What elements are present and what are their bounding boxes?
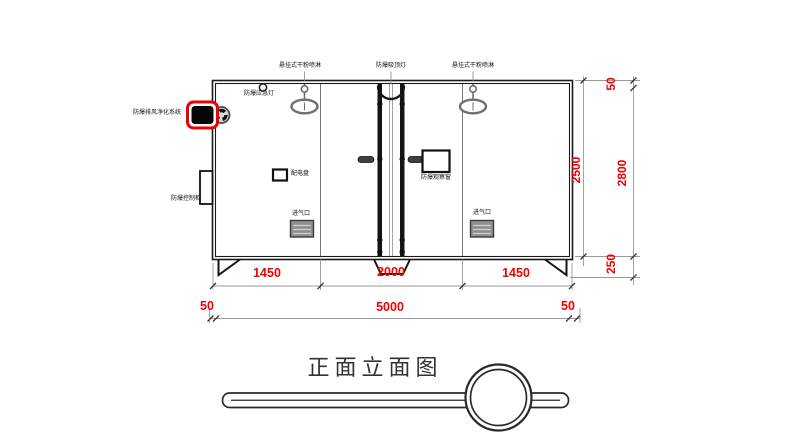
sprinkler-left-label: 悬挂式干粉喷淋 [279,63,321,70]
control-cabinet-icon [200,171,213,204]
air-inlet-right-label: 进气口 [473,210,491,217]
section-circle-icon [466,365,532,431]
distribution-panel-icon [273,170,287,181]
dim-overhang-left: 50 [200,300,214,313]
dim-roof-offset: 50 [605,77,617,90]
air-inlet-right-icon [471,221,494,238]
dim-body-height: 2500 [570,157,582,184]
drawing-title: 正面立面图 [307,356,442,380]
dim-overhang-right: 50 [561,300,575,313]
observation-window-icon [423,151,450,173]
air-inlet-left-icon [291,221,314,238]
dim-bay-left: 1450 [253,267,281,280]
dim-bay-center: 2000 [377,266,405,279]
sprinkler-right-label: 悬挂式干粉喷淋 [452,63,494,70]
elevation-drawing-sheet: 悬挂式干粉喷淋 防爆吸顶灯 悬挂式干粉喷淋 防爆应急灯 防爆排风净化系统 防爆控… [0,0,800,445]
dim-bay-right: 1450 [502,267,530,280]
dim-base-height: 250 [605,254,617,274]
observation-window-label: 防爆观察窗 [421,175,451,182]
dim-total-height: 2800 [616,160,628,187]
control-cabinet-label: 防爆控制柜 [171,196,201,203]
ceiling-lamp-label: 防爆吸顶灯 [376,63,406,70]
exhaust-purifier-label: 防爆排风净化系统 [133,110,181,117]
door-handle-left [358,157,374,163]
distribution-panel-label: 配电盘 [291,171,309,178]
air-inlet-left-label: 进气口 [292,211,310,218]
dim-total-width: 5000 [376,301,404,314]
emergency-lamp-label: 防爆应急灯 [244,91,274,98]
